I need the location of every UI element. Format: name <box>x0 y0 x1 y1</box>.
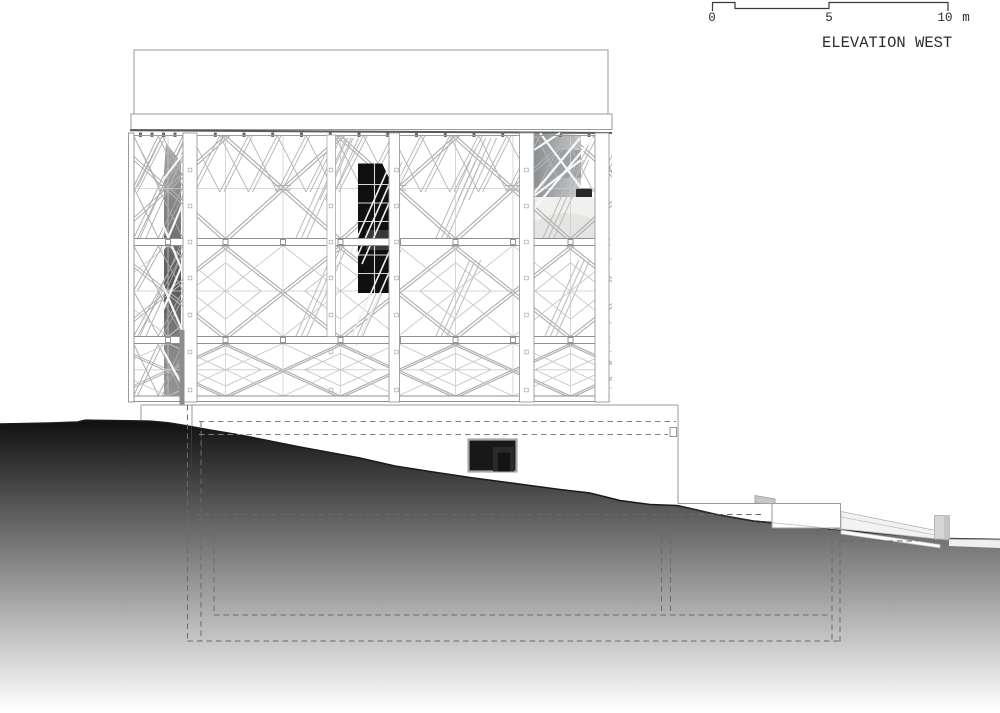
svg-text:0: 0 <box>708 11 716 25</box>
svg-text:5: 5 <box>825 11 833 25</box>
svg-text:m: m <box>962 11 970 25</box>
svg-text:10: 10 <box>937 11 952 25</box>
svg-text:ELEVATION WEST: ELEVATION WEST <box>822 34 952 52</box>
